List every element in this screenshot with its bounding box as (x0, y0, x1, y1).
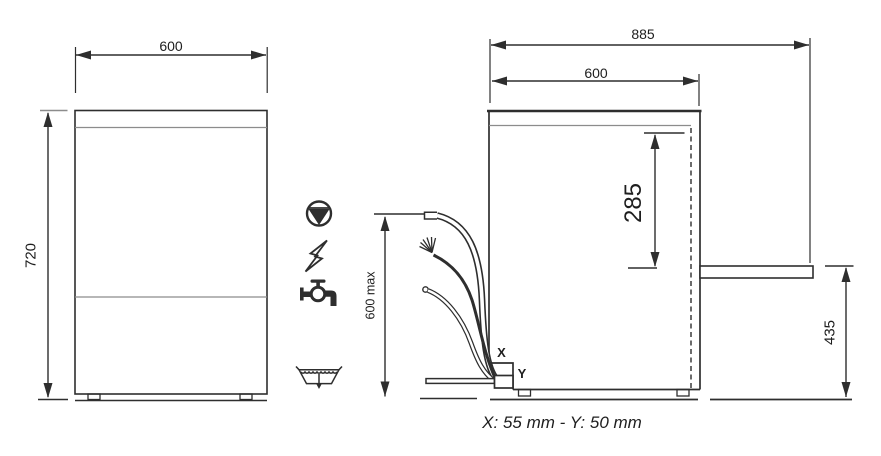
utility-icons (296, 202, 342, 390)
y-marker-label: Y (512, 366, 532, 381)
xy-dimensions-caption: X: 55 mm - Y: 50 mm (452, 411, 672, 433)
overall-depth-label: 885 (621, 26, 665, 41)
x-marker-label: X (492, 345, 512, 360)
arrow-left-icon (491, 41, 506, 50)
stripped-wire-strands (420, 237, 436, 253)
body-depth-label: 600 (574, 65, 618, 80)
arrow-up-icon (381, 216, 390, 231)
electric-power-icon (306, 241, 328, 272)
front-width-dimension (76, 47, 268, 93)
front-cabinet-outline (75, 111, 267, 395)
arrow-right-icon (683, 77, 698, 86)
arrow-right-icon (251, 51, 266, 60)
arrow-right-icon (794, 41, 809, 50)
water-tap-icon (300, 280, 337, 307)
overall-depth-dimension (490, 38, 810, 263)
side-right-foot (677, 390, 689, 397)
hose-reach-label: 600 max (363, 263, 378, 327)
drain-pump-icon (307, 202, 331, 226)
drain-height-label: 435 (823, 310, 838, 354)
arrow-left-icon (492, 77, 507, 86)
drain-hose-end (425, 212, 438, 219)
inlet-hose-connector (423, 287, 428, 292)
arrow-down-icon (651, 252, 660, 267)
front-view (75, 111, 267, 401)
front-left-foot (88, 394, 100, 400)
front-right-foot (240, 394, 252, 400)
hose-reach-dimension (374, 214, 424, 397)
front-width-label: 600 (149, 38, 193, 53)
floor-drain-hose (426, 379, 495, 384)
side-left-foot (519, 390, 531, 397)
arrow-down-icon (44, 383, 53, 398)
front-height-label: 720 (23, 233, 38, 277)
arrow-left-icon (76, 51, 91, 60)
floor-drain-icon (296, 367, 342, 390)
front-height-dimension (38, 111, 68, 400)
connection-lines (420, 212, 514, 388)
arrow-up-icon (44, 112, 53, 127)
drain-outlet-pipe (700, 266, 813, 278)
drain-span-label: 285 (622, 174, 646, 232)
drawing-canvas (0, 0, 881, 456)
arrow-down-icon (381, 382, 390, 397)
arrow-up-icon (842, 267, 851, 282)
connection-box (495, 376, 514, 389)
arrow-up-icon (651, 134, 660, 149)
arrow-down-icon (842, 382, 851, 397)
technical-drawing: 600 720 885 600 285 435 600 max X Y X: 5… (0, 0, 881, 456)
